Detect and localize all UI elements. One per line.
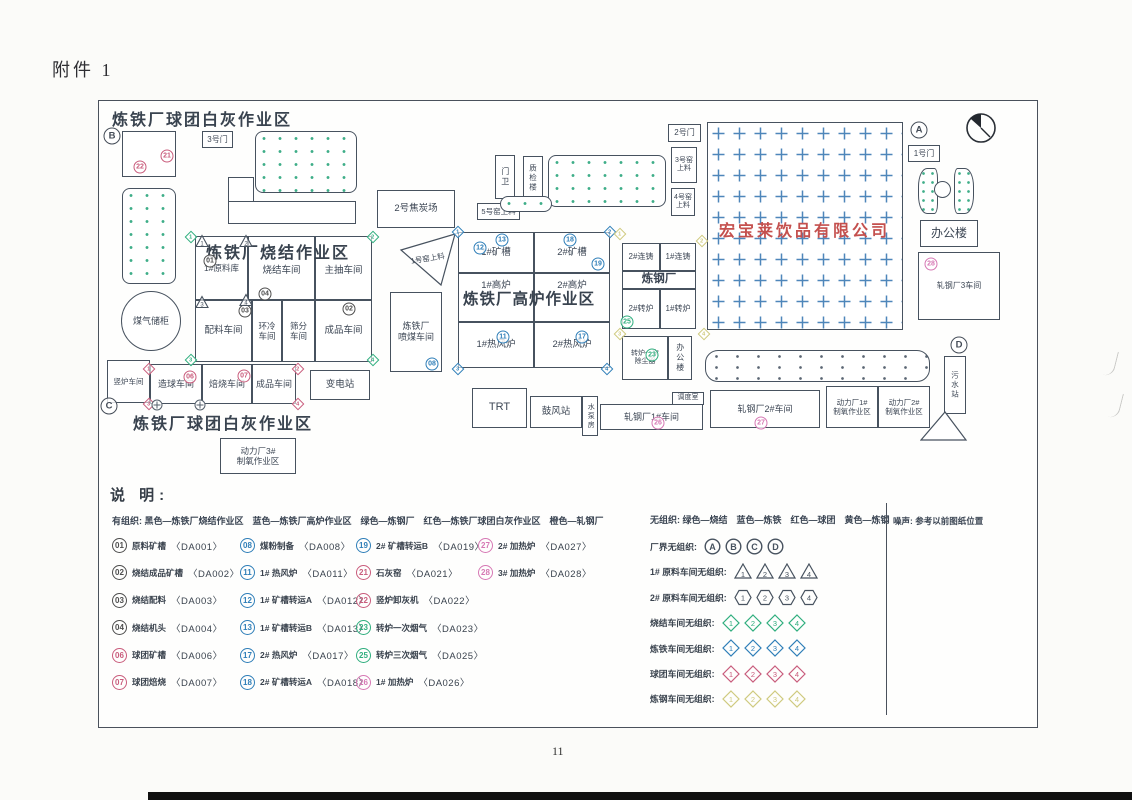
gate-3: 3号门 (202, 131, 233, 148)
building-label: 竖炉车间 (114, 377, 144, 386)
legend-shape-4: 4 (788, 639, 806, 657)
svg-text:C: C (751, 542, 758, 552)
building-label: 2#转炉 (629, 304, 654, 314)
legend-item-13: 131# 矿槽转运B〈DA013〉 (240, 620, 369, 635)
legend-item-label: 3# 加热炉 (498, 567, 535, 579)
svg-text:3: 3 (772, 669, 776, 678)
svg-text:4: 4 (794, 669, 798, 678)
legend-item-04: 04烧结机头〈DA004〉 (112, 620, 240, 635)
legend-column-4: 272# 加热炉〈DA027〉283# 加热炉〈DA028〉 (478, 538, 592, 593)
marker-survey-cross (195, 400, 206, 411)
marker-diamond-1: 1 (614, 228, 627, 241)
svg-text:4: 4 (807, 593, 811, 602)
legend-shape-4: 4 (800, 589, 818, 606)
marker-triangle-3: 3 (195, 296, 209, 309)
legend-item-code: 〈DA021〉 (407, 566, 459, 580)
legend-shape-1: 1 (722, 639, 740, 657)
legend-shape-4: 4 (788, 665, 806, 683)
legend-shape-4: 4 (788, 690, 806, 708)
building-label: 门卫 (500, 167, 510, 187)
building-label: 1号门 (914, 149, 934, 159)
building-label: 炼钢厂 (642, 273, 677, 287)
legend-item-badge: 13 (240, 620, 255, 635)
svg-text:1: 1 (728, 695, 732, 704)
legend-item-badge: 18 (240, 675, 255, 690)
source-badge-22: 22 (134, 161, 147, 174)
kiln-1-feed: 1号窑上料 (397, 229, 459, 294)
legend-item-badge: 11 (240, 565, 255, 580)
legend-shape-3: 3 (766, 665, 784, 683)
building-label: 成品车间 (256, 379, 292, 390)
legend-item-18: 182# 矿槽转运A〈DA018〉 (240, 675, 369, 690)
office-building: 办公楼 (920, 220, 978, 247)
legend-item-badge: 01 (112, 538, 127, 553)
svg-text:2: 2 (763, 593, 767, 602)
legend-row-label: 烧结车间无组织: (650, 616, 715, 629)
building-label: TRT (489, 401, 510, 414)
hot-stove-1: 1#热风炉 (458, 322, 534, 368)
legend-item-28: 283# 加热炉〈DA028〉 (478, 565, 592, 580)
legend-row-label: 炼铁车间无组织: (650, 642, 715, 655)
source-badge-04: 04 (259, 288, 272, 301)
caster-1: 1#连铸 (660, 243, 696, 271)
legend-item-code: 〈DA006〉 (171, 648, 223, 662)
building-label: 质检楼 (529, 164, 538, 193)
svg-text:D: D (772, 542, 779, 552)
legend-shape-2: 2 (756, 563, 774, 579)
source-badge-18: 18 (564, 234, 577, 247)
building-label: 鼓风站 (542, 406, 571, 417)
legend-item-11: 111# 热风炉〈DA011〉 (240, 565, 369, 580)
legend-item-badge: 08 (240, 538, 255, 553)
legend-item-badge: 25 (356, 648, 371, 663)
legend-item-12: 121# 矿槽转运A〈DA012〉 (240, 593, 369, 608)
building-label: 3号窑上料 (675, 157, 693, 174)
margin-scribble (1105, 391, 1124, 419)
legend-unorganized-row-2: 1# 原料车间无组织:1234 (650, 563, 818, 579)
marker-triangle-4: 4 (239, 294, 253, 307)
north-arrow-icon (963, 110, 999, 146)
legend-shape-B: B (725, 538, 742, 555)
building-label: 筛分车间 (290, 321, 307, 341)
legend-item-badge: 06 (112, 648, 127, 663)
svg-text:1: 1 (728, 619, 732, 628)
svg-text:2: 2 (763, 570, 767, 579)
legend-row-label: 炼钢车间无组织: (650, 692, 715, 705)
boundary-point-A: A (911, 122, 928, 139)
pump-house: 水泵房 (582, 396, 598, 436)
legend-item-03: 03烧结配料〈DA003〉 (112, 593, 240, 608)
legend-item-code: 〈DA023〉 (432, 621, 484, 635)
trt: TRT (472, 388, 527, 428)
building-label: 环冷车间 (258, 321, 275, 341)
svg-text:4: 4 (794, 695, 798, 704)
garden-east (954, 168, 974, 214)
source-badge-25: 25 (621, 316, 634, 329)
building-label: 2号门 (674, 128, 694, 138)
legend-shape-A: A (704, 538, 721, 555)
screening-ws: 筛分车间 (282, 300, 315, 362)
legend-shape-2: 2 (744, 614, 762, 632)
building-label: 污水站 (951, 371, 960, 400)
margin-scribble (1100, 349, 1119, 377)
legend-item-label: 球团矿槽 (132, 649, 166, 661)
oxygen-plant-3: 动力厂3#制氧作业区 (220, 438, 296, 474)
gate-2: 2号门 (668, 124, 701, 142)
svg-text:A: A (709, 542, 716, 552)
legend-unorganized-row-3: 2# 原料车间无组织:1234 (650, 589, 818, 606)
legend-item-label: 原料矿槽 (132, 540, 166, 552)
legend-item-08: 08煤粉制备〈DA008〉 (240, 538, 369, 553)
kiln-3-feed: 3号窑上料 (671, 147, 697, 183)
legend-item-label: 1# 加热炉 (376, 676, 413, 688)
source-badge-01: 01 (204, 255, 217, 268)
kiln-4-feed: 4号窑上料 (671, 188, 695, 216)
legend-row-label: 球团车间无组织: (650, 667, 715, 680)
legend-item-label: 石灰窑 (376, 567, 402, 579)
legend-item-label: 1# 热风炉 (260, 567, 297, 579)
legend-item-19: 192# 矿槽转运B〈DA019〉 (356, 538, 485, 553)
legend-shape-4: 4 (800, 563, 818, 579)
building-label: 1#连铸 (666, 252, 691, 262)
legend-item-label: 转炉一次烟气 (376, 622, 427, 634)
legend-shape-D: D (767, 538, 784, 555)
legend-item-label: 转炉三次烟气 (376, 649, 427, 661)
building-label: 2号焦炭场 (394, 203, 437, 214)
svg-text:3: 3 (772, 644, 776, 653)
legend-row-label: 2# 原料车间无组织: (650, 591, 727, 604)
region-title-pellet-lime-bottom: 炼铁厂球团白灰作业区 (133, 410, 313, 434)
building-label: 动力厂1#制氧作业区 (833, 398, 871, 416)
svg-text:2: 2 (750, 644, 754, 653)
legend-item-label: 2# 矿槽转运B (376, 540, 428, 552)
office-annex: 办公楼 (668, 336, 692, 380)
legend-shape-1: 1 (722, 665, 740, 683)
legend-item-label: 烧结成品矿槽 (132, 567, 183, 579)
building-label: 办公楼 (675, 343, 685, 373)
legend-item-badge: 22 (356, 593, 371, 608)
svg-text:2: 2 (750, 669, 754, 678)
legend-shape-2: 2 (744, 665, 762, 683)
svg-text:B: B (730, 542, 737, 552)
legend-shape-1: 1 (722, 690, 740, 708)
substation: 变电站 (310, 370, 370, 400)
legend-item-label: 2# 加热炉 (498, 540, 535, 552)
legend-item-06: 06球团矿槽〈DA006〉 (112, 648, 240, 663)
legend-column-2: 08煤粉制备〈DA008〉111# 热风炉〈DA011〉121# 矿槽转运A〈D… (240, 538, 369, 702)
building-label: 水泵房 (586, 403, 594, 430)
legend-item-code: 〈DA026〉 (418, 675, 470, 689)
legend-item-02: 02烧结成品矿槽〈DA002〉 (112, 565, 240, 580)
building-label: 轧钢厂3车间 (937, 281, 981, 291)
legend-item-label: 球团焙烧 (132, 676, 166, 688)
region-title-sinter-area: 炼铁厂烧结作业区 (206, 239, 350, 263)
svg-text:4: 4 (807, 570, 811, 579)
legend-item-code: 〈DA003〉 (171, 593, 223, 607)
legend-item-badge: 23 (356, 620, 371, 635)
marker-triangle-2: 2 (239, 235, 253, 248)
scanned-page: 附件 1 炼铁厂球团白灰作业区炼铁厂烧结作业区炼铁厂高炉作业区炼铁厂球团白灰作业… (0, 0, 1132, 800)
legend-item-code: 〈DA004〉 (171, 621, 223, 635)
legend-item-badge: 04 (112, 620, 127, 635)
legend-item-badge: 17 (240, 648, 255, 663)
legend-item-label: 煤粉制备 (260, 540, 294, 552)
legend-column-3: 192# 矿槽转运B〈DA019〉21石灰窑〈DA021〉22竖炉卸灰机〈DA0… (356, 538, 485, 702)
building-label: 配料车间 (204, 325, 242, 336)
building-label: 办公楼 (931, 226, 967, 240)
source-badge-11: 11 (497, 331, 510, 344)
passage (920, 410, 968, 447)
oxygen-plant-1: 动力厂1#制氧作业区 (826, 386, 878, 428)
svg-text:1: 1 (728, 669, 732, 678)
converter-1: 1#转炉 (660, 289, 696, 329)
steelworks: 炼钢厂 (622, 271, 696, 289)
legend-item-code: 〈DA017〉 (302, 648, 354, 662)
svg-text:2: 2 (750, 695, 754, 704)
svg-text:1: 1 (728, 644, 732, 653)
pelletizing-ws: 造球车间 (150, 364, 202, 404)
marker-triangle-1: 1 (195, 235, 209, 248)
guard-box: 门卫 (495, 155, 515, 199)
legend-item-label: 烧结机头 (132, 622, 166, 634)
legend-shape-2: 2 (744, 639, 762, 657)
source-badge-02: 02 (343, 303, 356, 316)
building-label: 成品车间 (324, 325, 362, 336)
legend-shape-C: C (746, 538, 763, 555)
legend-item-badge: 07 (112, 675, 127, 690)
legend-unorganized-row-6: 球团车间无组织:1234 (650, 665, 806, 683)
legend-column-1: 01原料矿槽〈DA001〉02烧结成品矿槽〈DA002〉03烧结配料〈DA003… (112, 538, 240, 702)
legend-shape-3: 3 (766, 614, 784, 632)
building-label: 4号窑上料 (674, 194, 692, 211)
building-label: 3号门 (207, 135, 227, 145)
legend-item-23: 23转炉一次烟气〈DA023〉 (356, 620, 485, 635)
ring-cooler-ws: 环冷车间 (252, 300, 282, 362)
legend-shape-1: 1 (722, 614, 740, 632)
coke-yard: 2号焦炭场 (377, 190, 455, 228)
pellet-product-ws: 成品车间 (252, 364, 296, 404)
legend-shape-2: 2 (744, 690, 762, 708)
legend-shape-4: 4 (788, 614, 806, 632)
legend-item-07: 07球团焙烧〈DA007〉 (112, 675, 240, 690)
source-badge-23: 23 (646, 349, 659, 362)
building-label: 主抽车间 (324, 265, 362, 276)
building-label: 2#连铸 (629, 252, 654, 262)
legend-item-26: 261# 加热炉〈DA026〉 (356, 675, 485, 690)
building-label: 煤气储柜 (133, 316, 169, 327)
legend-item-badge: 26 (356, 675, 371, 690)
trees-strip (705, 350, 930, 382)
gate-1: 1号门 (908, 145, 940, 162)
legend-item-21: 21石灰窑〈DA021〉 (356, 565, 485, 580)
legend-item-code: 〈DA019〉 (433, 539, 485, 553)
building-label: 轧钢厂2#车间 (737, 404, 792, 415)
gas-holder: 煤气储柜 (121, 291, 181, 351)
legend-shape-2: 2 (756, 589, 774, 606)
region-title-blast-furnace-area: 炼铁厂高炉作业区 (463, 287, 595, 309)
legend-shape-3: 3 (778, 563, 796, 579)
legend-unorganized-row-7: 炼钢车间无组织:1234 (650, 690, 806, 708)
lawn-north (255, 131, 357, 193)
boundary-point-D: D (951, 337, 968, 354)
legend-item-17: 172# 热风炉〈DA017〉 (240, 648, 369, 663)
svg-text:3: 3 (772, 695, 776, 704)
building-label: 1#热风炉 (476, 339, 515, 350)
legend-item-label: 2# 热风炉 (260, 649, 297, 661)
legend-item-code: 〈DA001〉 (171, 539, 223, 553)
legend-item-25: 25转炉三次烟气〈DA025〉 (356, 648, 485, 663)
marker-survey-cross (152, 400, 163, 411)
svg-text:3: 3 (785, 593, 789, 602)
caster-2: 2#连铸 (622, 243, 660, 271)
svg-text:4: 4 (794, 644, 798, 653)
source-badge-27: 27 (755, 417, 768, 430)
legend-row-label: 1# 原料车间无组织: (650, 565, 727, 578)
legend-unorganized-row-4: 烧结车间无组织:1234 (650, 614, 806, 632)
legend-item-label: 1# 矿槽转运A (260, 594, 312, 606)
lawn-east-ext (500, 196, 552, 212)
svg-text:1: 1 (741, 570, 745, 579)
legend-item-badge: 03 (112, 593, 127, 608)
source-badge-12: 12 (474, 242, 487, 255)
source-badge-28: 28 (925, 258, 938, 271)
svg-text:1: 1 (741, 593, 745, 602)
converter-dedust: 转炉一次除尘器 (622, 336, 668, 380)
building-label: 烧结车间 (262, 265, 300, 276)
source-badge-06: 06 (184, 371, 197, 384)
legend-item-badge: 19 (356, 538, 371, 553)
building-label: 动力厂3#制氧作业区 (237, 446, 280, 466)
legend-item-badge: 27 (478, 538, 493, 553)
svg-text:3: 3 (785, 570, 789, 579)
legend-row-label: 厂界无组织: (650, 540, 697, 553)
building-label: 2#矿槽 (557, 247, 587, 258)
boundary-point-B: B (104, 128, 121, 145)
legend-shape-3: 3 (766, 690, 784, 708)
lawn-west (122, 188, 176, 284)
legend-item-01: 01原料矿槽〈DA001〉 (112, 538, 240, 553)
lawn-east (548, 155, 666, 207)
legend-item-27: 272# 加热炉〈DA027〉 (478, 538, 592, 553)
building-label: 调度室 (678, 394, 699, 402)
legend-item-badge: 28 (478, 565, 493, 580)
svg-text:4: 4 (794, 619, 798, 628)
svg-text:2: 2 (750, 619, 754, 628)
dispatch-room: 调度室 (672, 392, 704, 405)
legend-item-code: 〈DA028〉 (540, 566, 592, 580)
boundary-point-C: C (101, 398, 118, 415)
legend-item-code: 〈DA025〉 (432, 648, 484, 662)
blower-station: 鼓风站 (530, 396, 582, 428)
legend-unorganized-row-1: 厂界无组织:ABCD (650, 538, 784, 555)
region-title-company: 宏宝莱饮品有限公司 (719, 217, 890, 241)
garden-circle (934, 181, 951, 198)
source-badge-13: 13 (496, 234, 509, 247)
warehouse-l-horiz (228, 201, 356, 224)
building-label: 炼铁厂喷煤车间 (398, 321, 434, 343)
region-title-pellet-lime-top: 炼铁厂球团白灰作业区 (112, 106, 292, 130)
legend-shape-1: 1 (734, 563, 752, 579)
legend-unorganized-row-5: 炼铁车间无组织:1234 (650, 639, 806, 657)
building-label: 1#转炉 (666, 304, 691, 314)
source-badge-21: 21 (161, 150, 174, 163)
legend-item-badge: 21 (356, 565, 371, 580)
source-badge-19: 19 (592, 258, 605, 271)
legend-item-label: 2# 矿槽转运A (260, 676, 312, 688)
legend-item-badge: 02 (112, 565, 127, 580)
svg-text:3: 3 (772, 619, 776, 628)
legend-item-label: 烧结配料 (132, 594, 166, 606)
hot-stove-2: 2#热风炉 (534, 322, 610, 368)
source-badge-26: 26 (652, 417, 665, 430)
legend-item-code: 〈DA011〉 (302, 566, 353, 580)
legend-item-label: 竖炉卸灰机 (376, 594, 419, 606)
building-label: 变电站 (326, 379, 355, 390)
legend-shape-3: 3 (778, 589, 796, 606)
legend-item-label: 1# 矿槽转运B (260, 622, 312, 634)
legend-item-code: 〈DA027〉 (540, 539, 592, 553)
building-label: 动力厂2#制氧作业区 (885, 398, 923, 416)
legend-shape-3: 3 (766, 639, 784, 657)
source-badge-08: 08 (426, 358, 439, 371)
legend-item-code: 〈DA008〉 (299, 539, 351, 553)
source-badge-07: 07 (238, 370, 251, 383)
legend-item-22: 22竖炉卸灰机〈DA022〉 (356, 593, 485, 608)
source-badge-17: 17 (576, 331, 589, 344)
sewage-station: 污水站 (944, 356, 966, 414)
legend-item-code: 〈DA007〉 (171, 675, 223, 689)
legend-item-badge: 12 (240, 593, 255, 608)
inspection-bldg: 质检楼 (523, 156, 543, 200)
legend-item-code: 〈DA002〉 (188, 566, 240, 580)
legend-shape-1: 1 (734, 589, 752, 606)
legend-item-code: 〈DA022〉 (424, 593, 476, 607)
warehouse-l-vert (228, 177, 254, 203)
